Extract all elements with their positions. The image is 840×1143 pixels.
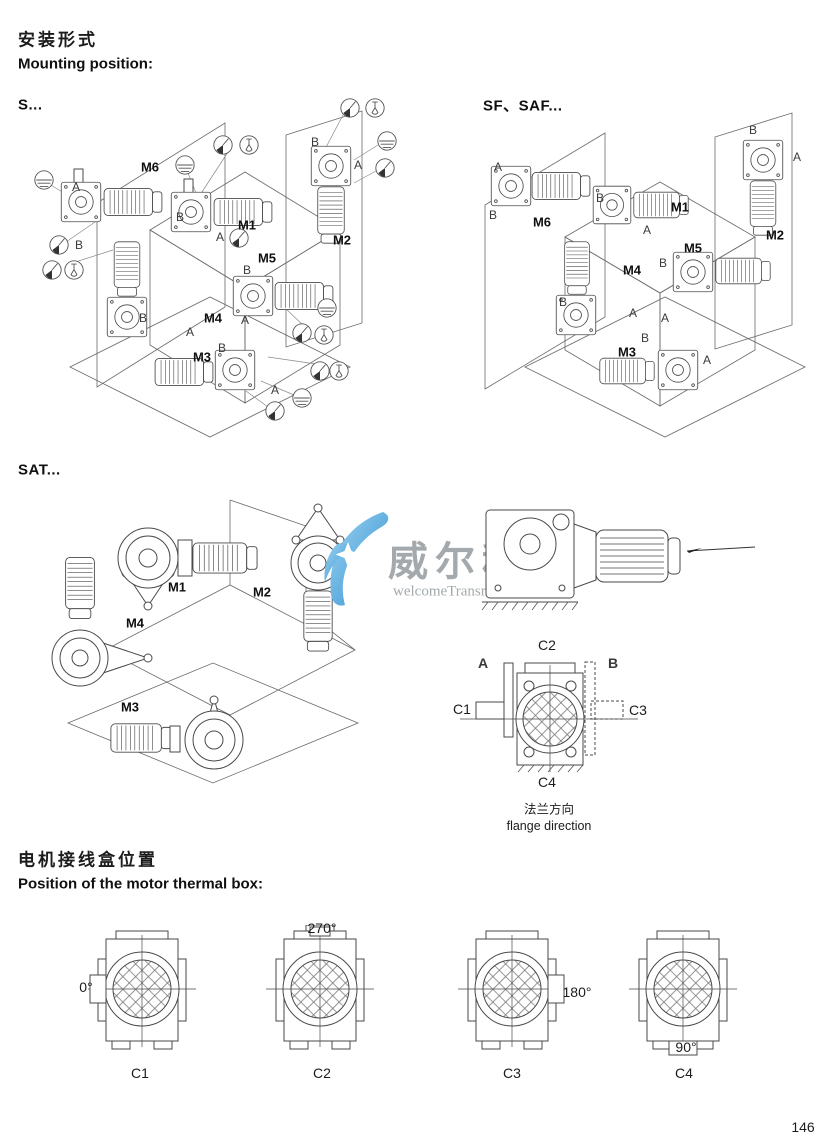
letter-a-m4-sf: A [629, 306, 637, 320]
page-number: 146 [791, 1119, 814, 1135]
letter-a-m3-sf: A [703, 353, 711, 367]
letter-a-m5-sf: A [661, 311, 669, 325]
letter-b-m3-sf: B [641, 331, 649, 345]
letter-a-m2-s: A [354, 158, 362, 172]
letter-a-m6-s: A [72, 180, 80, 194]
sf-mounting-diagram [480, 95, 835, 445]
flange-letter-a: A [478, 655, 488, 671]
vent-valve-icon [330, 362, 348, 380]
thermal-box-drawing-c1 [72, 925, 212, 1057]
letter-b-m4-sf: B [559, 295, 567, 309]
oil-drain-icon [214, 136, 232, 154]
letter-b-m2-sf: B [749, 123, 757, 137]
vent-valve-icon [315, 326, 333, 344]
thermal-label-c4: C4 [675, 1065, 693, 1081]
vent-valve-icon [65, 261, 83, 279]
letter-a-m1-sf: A [643, 223, 651, 237]
thermal-title-en: Position of the motor thermal box: [18, 876, 263, 893]
oil-drain-icon [50, 236, 68, 254]
flange-direction-diagram [440, 632, 710, 777]
s-gearmotor-m2 [311, 146, 350, 243]
pos-m5-sf: M5 [684, 241, 702, 256]
flange-caption-zh: 法兰方向 [524, 799, 574, 818]
flange-label-c3: C3 [629, 702, 647, 718]
pos-m4-sf: M4 [623, 263, 641, 278]
letter-a-m6-sf: A [494, 160, 502, 174]
oil-level-icon [293, 389, 311, 407]
sf-gearmotor-m3 [600, 350, 698, 389]
pos-m3-sf: M3 [618, 345, 636, 360]
pos-m2-sf: M2 [766, 228, 784, 243]
pos-m5-s: M5 [258, 251, 276, 266]
letter-b-m6-sf: B [489, 208, 497, 222]
thermal-label-c3: C3 [503, 1065, 521, 1081]
catalog-page: 安装形式 Mounting position: S... SF、SAF... S… [0, 0, 840, 1143]
thermal-box-drawing-c2 [250, 925, 390, 1057]
sf-gearmotor-m4 [556, 242, 595, 335]
sf-gearmotor-m5 [673, 252, 770, 291]
flange-label-c1: C1 [453, 701, 471, 717]
oil-level-icon [176, 156, 194, 174]
angle-c2: 270° [308, 920, 337, 936]
thermal-box-drawing-c3 [442, 925, 582, 1057]
angle-c1: 0° [79, 979, 92, 995]
letter-b-m1-sf: B [596, 191, 604, 205]
oil-drain-icon [341, 99, 359, 117]
thermal-label-c2: C2 [313, 1065, 331, 1081]
thermal-title-zh: 电机接线盒位置 [18, 846, 158, 871]
pos-m1-sat: M1 [168, 580, 186, 595]
pos-m4-sat: M4 [126, 616, 144, 631]
sat-side-view-drawing [478, 502, 693, 614]
pos-m2-s: M2 [333, 233, 351, 248]
pos-m3-s: M3 [193, 350, 211, 365]
pos-m1-s: M1 [238, 218, 256, 233]
letter-a-m5-s: A [241, 313, 249, 327]
letter-b-m3-s: B [218, 341, 226, 355]
pos-m3-sat: M3 [121, 700, 139, 715]
angle-c3: 180° [563, 984, 592, 1000]
sf-gearmotor-m6 [491, 166, 590, 205]
sf-gearmotor-m2 [743, 140, 782, 235]
letter-b-m5-sf: B [659, 256, 667, 270]
vent-valve-icon [366, 99, 384, 117]
letter-b-m4-s: B [139, 311, 147, 325]
vent-valve-icon [240, 136, 258, 154]
section-label-sat: SAT... [18, 462, 61, 479]
oil-drain-icon [266, 402, 284, 420]
letter-b-m1-s: B [176, 210, 184, 224]
pointer-arrow-icon [685, 543, 757, 557]
letter-a-m2-sf: A [793, 150, 801, 164]
thermal-label-c1: C1 [131, 1065, 149, 1081]
pos-m6-s: M6 [141, 160, 159, 175]
letter-a-m4-s: A [186, 325, 194, 339]
pos-m2-sat: M2 [253, 585, 271, 600]
oil-drain-icon [293, 324, 311, 342]
mounting-title-zh: 安装形式 [18, 26, 98, 51]
s-gearmotor-m1 [171, 179, 272, 232]
angle-c4: 90° [675, 1039, 696, 1055]
sat-gearmotor-m1 [118, 528, 257, 610]
s-mounting-diagram [18, 95, 463, 445]
letter-a-m1-s: A [216, 230, 224, 244]
oil-drain-icon [43, 261, 61, 279]
flange-label-c2: C2 [538, 637, 556, 653]
pos-m4-s: M4 [204, 311, 222, 326]
s-gearmotor-m6 [61, 169, 162, 222]
pos-m1-sf: M1 [671, 200, 689, 215]
oil-level-icon [318, 299, 336, 317]
oil-level-icon [35, 171, 53, 189]
watermark-logo-icon [323, 512, 395, 607]
mounting-title-en: Mounting position: [18, 56, 153, 73]
flange-letter-b: B [608, 655, 618, 671]
letter-b-m6-s: B [75, 238, 83, 252]
oil-drain-icon [376, 159, 394, 177]
letter-b-m5-s: B [243, 263, 251, 277]
oil-level-icon [378, 132, 396, 150]
letter-a-m3-s: A [271, 383, 279, 397]
flange-caption-en: flange direction [507, 819, 592, 833]
pos-m6-sf: M6 [533, 215, 551, 230]
flange-label-c4: C4 [538, 774, 556, 790]
thermal-box-drawing-c4 [613, 925, 753, 1057]
oil-drain-icon [311, 362, 329, 380]
letter-b-m2-s: B [311, 135, 319, 149]
